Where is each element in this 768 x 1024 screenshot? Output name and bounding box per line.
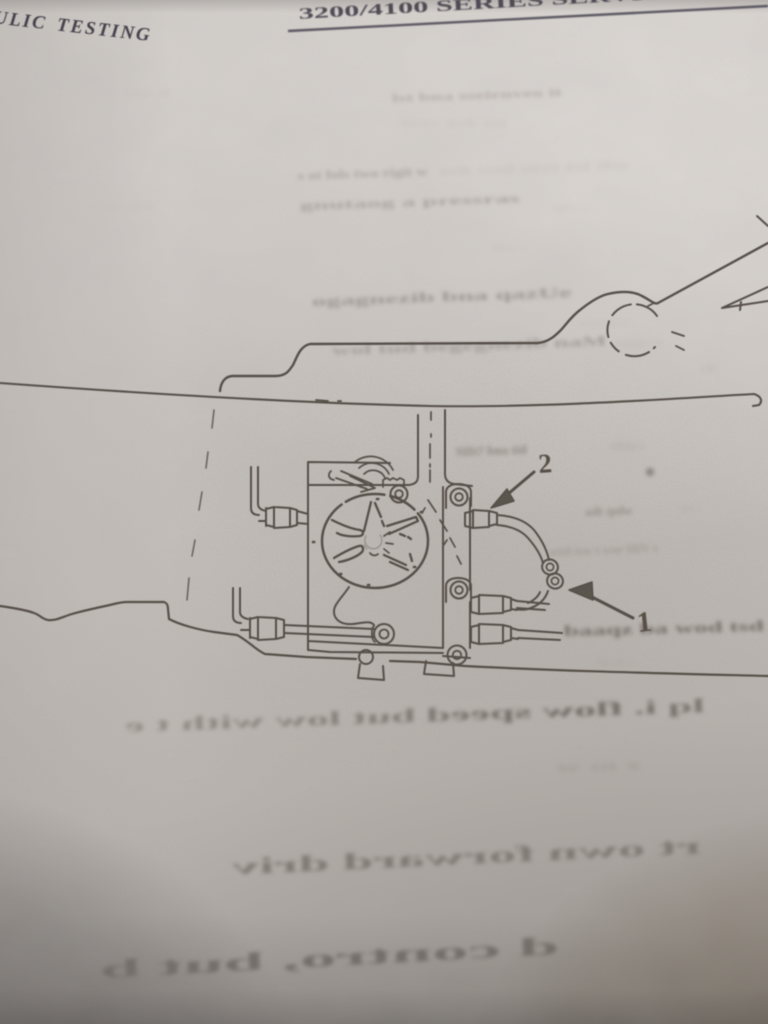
svg-text:ms t: ms t [680, 500, 701, 515]
svg-text:SIIt? bna tid: SIIt? bna tid [456, 442, 528, 459]
svg-text:w ot s: w ot s [556, 757, 641, 775]
svg-text:wo sd ui: wo sd ui [398, 117, 508, 129]
svg-text:odt ot dsw: odt ot dsw [520, 286, 571, 302]
svg-text:2: 2 [537, 448, 553, 479]
svg-text:adt qolw: adt qolw [585, 502, 634, 519]
svg-text:rebce s t: rebce s t [553, 202, 590, 215]
svg-text:engag s w: engag s w [615, 334, 664, 350]
svg-text:w e: w e [0, 547, 16, 559]
svg-text:noitsoiludo: noitsoiludo [578, 316, 628, 330]
svg-text:verlag a press: verlag a press [88, 198, 155, 213]
svg-text:ta iue d: ta iue d [100, 87, 171, 99]
svg-text:rebna s: rebna s [610, 438, 645, 453]
svg-text:reberv s: reberv s [490, 242, 526, 255]
svg-text:no ede to a dt iw: no ede to a dt iw [55, 167, 135, 182]
svg-text:s Et: s Et [700, 362, 717, 375]
svg-text:bo ot s: bo ot s [599, 654, 632, 669]
svg-text:s Et: s Et [0, 415, 17, 427]
